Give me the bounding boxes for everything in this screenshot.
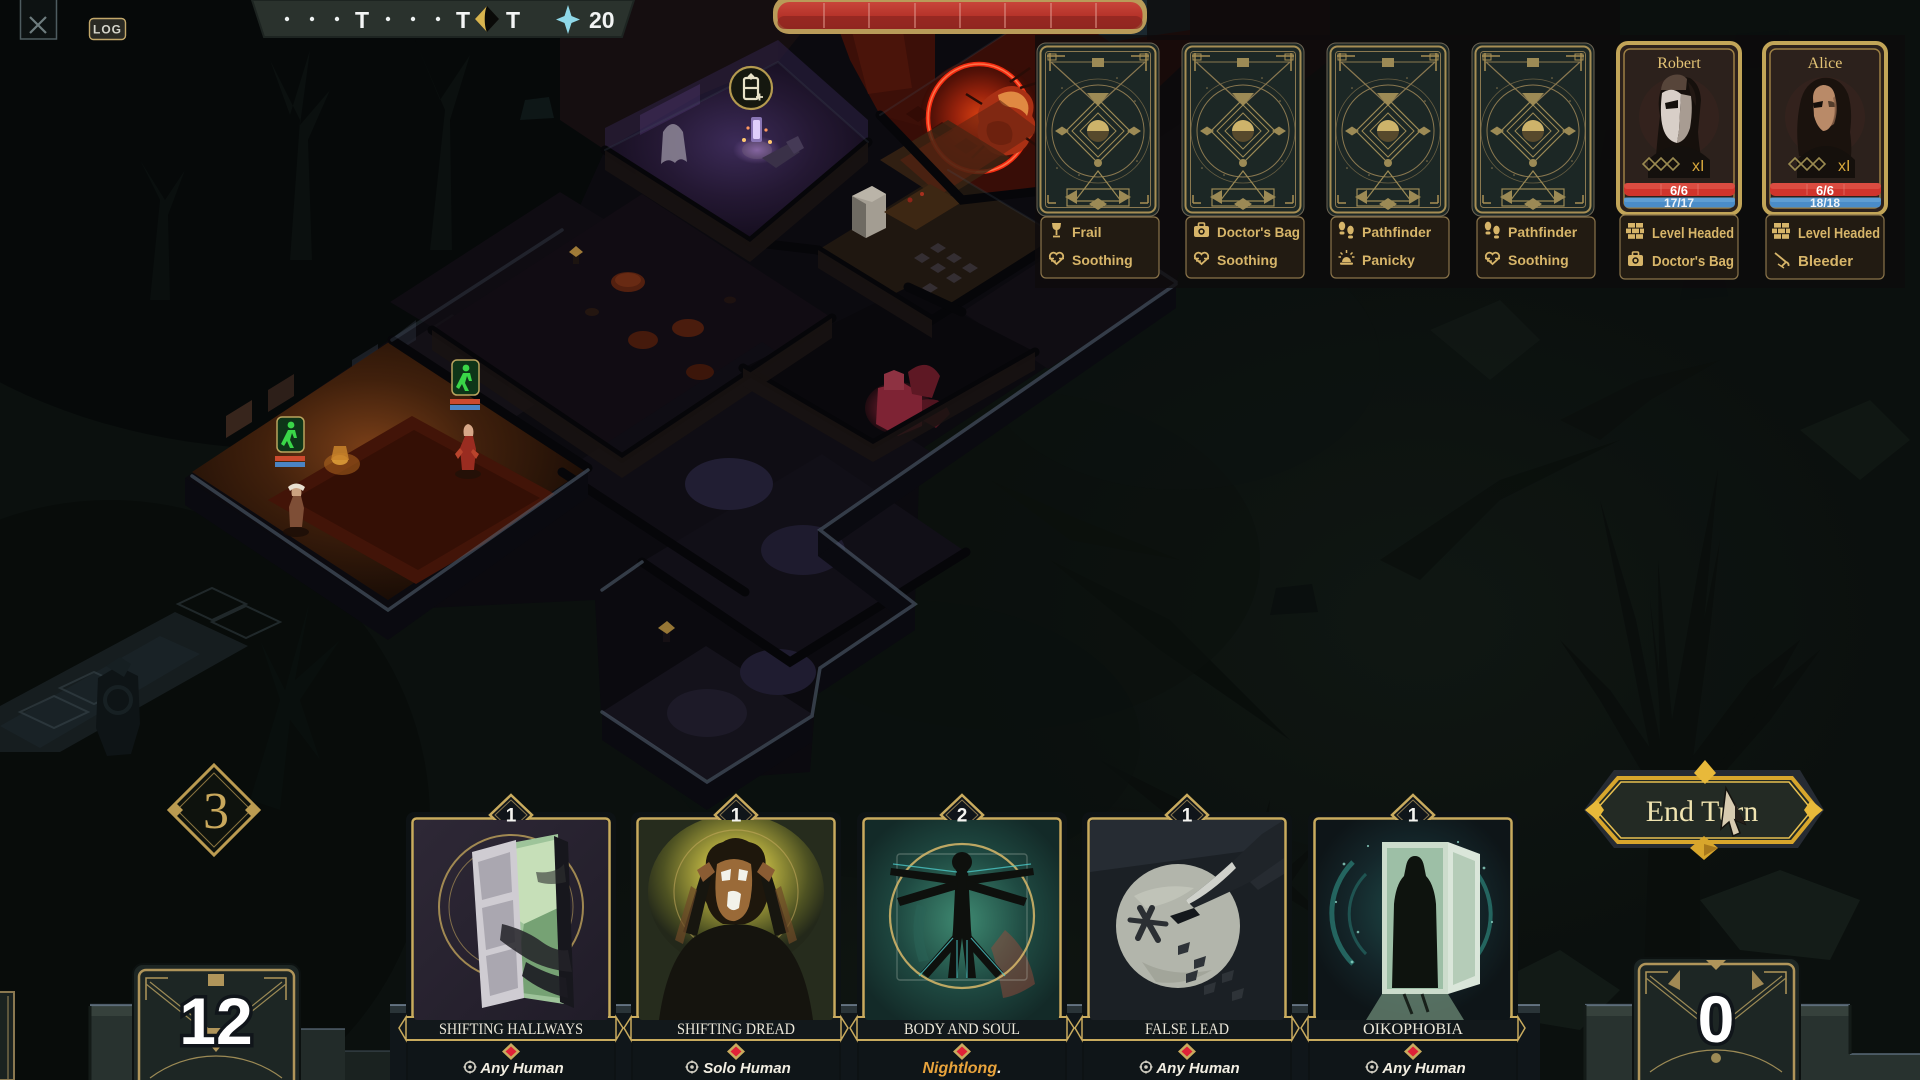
svg-text:17/17: 17/17 — [1664, 196, 1694, 210]
svg-text:T: T — [355, 7, 369, 33]
svg-text:Any Human: Any Human — [479, 1060, 563, 1077]
svg-text:xI: xI — [1692, 158, 1704, 175]
svg-text:Frail: Frail — [1072, 224, 1102, 240]
svg-text:Alice: Alice — [1808, 55, 1843, 72]
svg-text:Pathfinder: Pathfinder — [1508, 224, 1578, 240]
svg-text:xI: xI — [1838, 158, 1850, 175]
svg-text:Nightlong.: Nightlong. — [922, 1060, 1001, 1077]
svg-text:1: 1 — [1408, 806, 1419, 827]
svg-text:1: 1 — [731, 806, 742, 827]
svg-text:T: T — [456, 7, 470, 33]
svg-text:0: 0 — [1698, 982, 1735, 1056]
svg-text:Doctor's Bag: Doctor's Bag — [1217, 224, 1300, 240]
svg-text:Any Human: Any Human — [1381, 1060, 1465, 1077]
svg-text:FALSE LEAD: FALSE LEAD — [1145, 1021, 1229, 1038]
svg-text:LOG: LOG — [93, 23, 122, 37]
svg-text:Soothing: Soothing — [1217, 252, 1278, 268]
svg-text:BODY AND SOUL: BODY AND SOUL — [904, 1021, 1020, 1038]
svg-text:Solo Human: Solo Human — [703, 1060, 791, 1077]
svg-text:2: 2 — [957, 806, 968, 827]
svg-text:Level Headed: Level Headed — [1652, 225, 1734, 242]
svg-text:Any Human: Any Human — [1155, 1060, 1239, 1077]
svg-text:SHIFTING DREAD: SHIFTING DREAD — [677, 1021, 795, 1038]
svg-text:Level Headed: Level Headed — [1798, 225, 1880, 242]
svg-text:20: 20 — [589, 7, 615, 33]
svg-text:12: 12 — [179, 984, 252, 1058]
svg-text:SHIFTING HALLWAYS: SHIFTING HALLWAYS — [439, 1021, 583, 1038]
svg-text:3: 3 — [203, 783, 229, 840]
svg-text:1: 1 — [1182, 806, 1193, 827]
svg-text:1: 1 — [506, 806, 517, 827]
svg-text:Bleeder: Bleeder — [1798, 253, 1853, 270]
svg-text:Panicky: Panicky — [1362, 252, 1415, 268]
svg-text:18/18: 18/18 — [1810, 196, 1840, 210]
svg-text:OIKOPHOBIA: OIKOPHOBIA — [1363, 1021, 1463, 1038]
svg-text:Soothing: Soothing — [1508, 252, 1569, 268]
svg-text:Pathfinder: Pathfinder — [1362, 224, 1432, 240]
svg-text:Robert: Robert — [1657, 55, 1701, 72]
svg-text:T: T — [506, 7, 520, 33]
svg-text:Soothing: Soothing — [1072, 252, 1133, 268]
svg-text:Doctor's Bag: Doctor's Bag — [1652, 253, 1734, 270]
